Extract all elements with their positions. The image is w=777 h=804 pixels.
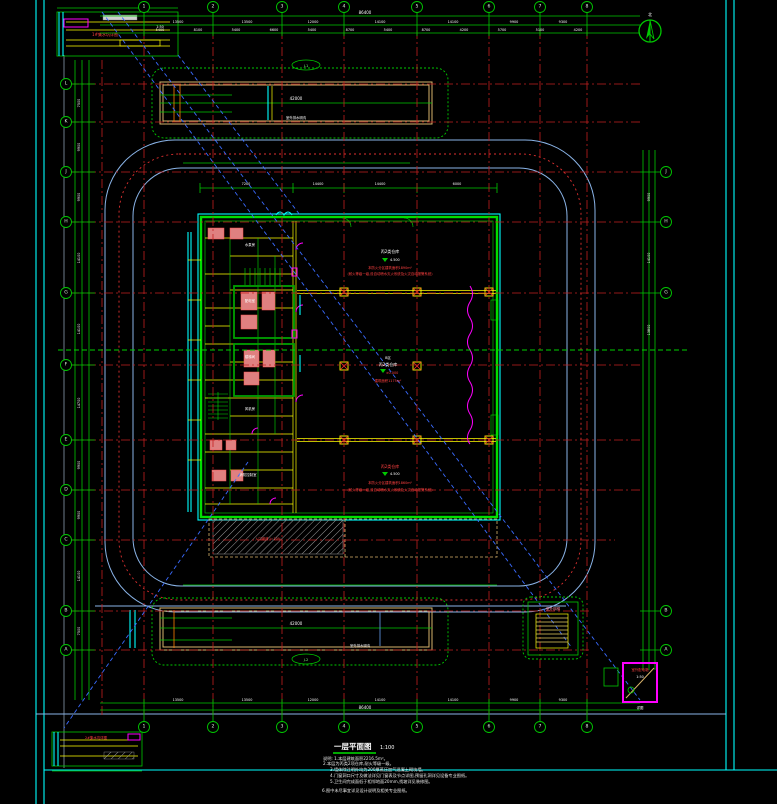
dimension-lines	[58, 12, 688, 722]
title-block: 一层平面图 1:100 说明: 1.本层建筑面积2216.5m²。 2.本层为丙…	[322, 742, 469, 794]
cad-floor-plan-sheet: J-1 42000 室外排水明沟 42000 J-2 室外排水明沟 1#集水坑详…	[0, 0, 777, 804]
dim: 7500	[77, 99, 81, 108]
dim: 14100	[375, 20, 386, 24]
grid-bubble-label: 8	[586, 724, 589, 730]
dim: 4200	[574, 28, 583, 32]
grid-bubble-label: 7	[539, 4, 542, 10]
grid-bubble-label: 3	[281, 4, 284, 10]
grid-bubble-label: 7	[539, 724, 542, 730]
north-label: 北	[648, 11, 652, 17]
service-room-label: 配电室	[245, 298, 256, 303]
bottom-trench-block: 42000 J-2 室外排水明沟	[130, 598, 448, 665]
middle-room-name: 丙2类仓库	[379, 361, 398, 367]
bottom-left-detail-block: 2#集水坑详图	[52, 732, 142, 771]
building-plan	[183, 163, 500, 585]
dim: 14100	[77, 253, 81, 264]
dim: 13500	[173, 20, 184, 24]
dim: 6000	[453, 182, 462, 186]
top-block-tag: J-1	[303, 64, 309, 68]
dim: 5400	[384, 28, 393, 32]
dim: 14700	[77, 398, 81, 409]
grid-bubble-label: G	[64, 290, 68, 296]
dim: 9300	[559, 20, 568, 24]
dim: 9900	[77, 193, 81, 202]
grid-bubble-label: 8	[586, 4, 589, 10]
drawing-title: 一层平面图	[334, 742, 372, 751]
cad-drawing-canvas: J-1 42000 室外排水明沟 42000 J-2 室外排水明沟 1#集水坑详…	[0, 0, 777, 804]
dim: 4200	[460, 28, 469, 32]
middle-room-elevation: ±0.000	[386, 371, 399, 375]
dim: 5400	[308, 28, 317, 32]
grid-bubble-label: 1	[143, 724, 146, 730]
dim: 14100	[375, 698, 386, 702]
detail-leader-lines	[64, 12, 640, 728]
dim: 9900	[510, 698, 519, 702]
top-block-dim: 42000	[290, 96, 303, 101]
grid-bubble-label: H	[64, 219, 67, 225]
dim: 5100	[536, 28, 545, 32]
upper-room-note: 本防火分区建筑面积1890m²	[368, 265, 412, 270]
grid-bubble-label: B	[64, 608, 67, 614]
equipment-fixtures	[208, 228, 275, 481]
bottom-block-tag: J-2	[303, 658, 309, 662]
top-trench-block: J-1 42000 室外排水明沟	[152, 60, 448, 138]
dim: 12000	[308, 698, 319, 702]
switch-box-label: 室外配电箱	[632, 667, 650, 672]
north-arrow: 北	[639, 11, 661, 42]
bottom-block-label: 室外排水明沟	[350, 643, 371, 648]
dim: 5400	[232, 28, 241, 32]
service-room-label: 消防控制室	[240, 472, 258, 477]
ramp-label: 入口坡道 i=10%	[255, 536, 282, 541]
upper-room-elevation: 4.500	[390, 258, 400, 262]
dim-top-total: 86400	[359, 10, 372, 15]
dim: 14100	[448, 20, 459, 24]
grid-bubble-label: J	[64, 169, 66, 175]
lower-room-note: (耐火等级一级,设自动喷水灭火系统及火灾自动报警系统)	[347, 487, 433, 492]
dim: 12000	[308, 20, 319, 24]
note-line: 3.墙体除注明外均为200厚蒸压加气混凝土砌块墙。	[330, 766, 426, 773]
dim: 9900	[647, 193, 651, 202]
grid-bubble-label: F	[65, 362, 68, 368]
bottom-left-block-label: 2#集水坑详图	[85, 735, 108, 740]
middle-room-note: 建筑面积1175m²	[375, 378, 402, 383]
grid-bubble-label: B	[664, 608, 667, 614]
dim: 13500	[242, 698, 253, 702]
grid-bubble-label: 5	[416, 4, 419, 10]
lower-room-elevation: 4.500	[390, 472, 400, 476]
grid-bubble-label: 4	[343, 4, 346, 10]
grid-bubble-label: L	[65, 81, 68, 87]
grid-bubble-label: 6	[488, 4, 491, 10]
dim: 9900	[77, 143, 81, 152]
dim: 14400	[313, 182, 324, 186]
dim: 14100	[647, 253, 651, 264]
grid-bubble-label: 2	[212, 724, 215, 730]
grid-bubble-label: E	[65, 437, 68, 443]
grid-bubble-label: 3	[281, 724, 284, 730]
grid-bubble-label: 5	[416, 724, 419, 730]
dim: 9900	[510, 20, 519, 24]
grid-bubble-label: D	[64, 487, 68, 493]
dim: 14100	[77, 571, 81, 582]
upper-room-note: (耐火等级一级,设自动喷水灭火系统及火灾自动报警系统)	[347, 271, 433, 276]
grid-bubble-label: C	[64, 537, 67, 543]
switch-box-caption: 详图	[637, 705, 644, 710]
lower-room-note: 本防火分区建筑面积1860m²	[368, 480, 412, 485]
top-left-block-label: 1#集水坑详图	[92, 31, 118, 37]
top-block-label: 室外排水明沟	[286, 115, 307, 120]
dim: 14100	[448, 698, 459, 702]
grid-bubble-label: J	[664, 169, 666, 175]
dim: 8100	[194, 28, 203, 32]
service-room-label: 水泵房	[245, 242, 256, 247]
middle-room-tag: B区	[385, 356, 391, 360]
stair-detail-label: 室外钢梯	[546, 606, 561, 611]
dim: 5400	[156, 28, 165, 32]
dim: 14400	[375, 182, 386, 186]
note-line: 2.本层为丙类2项仓库,耐火等级一级。	[323, 760, 394, 767]
dim: 13800	[647, 325, 651, 336]
service-room-label: 楼梯间	[245, 354, 256, 359]
note-line: 5.卫生间完成面低于相邻地面20mm,找坡详见装修图。	[330, 778, 433, 785]
dim: 9300	[559, 698, 568, 702]
dim: 13500	[173, 698, 184, 702]
upper-room-name: 丙2类仓库	[381, 248, 400, 254]
dim: 5700	[498, 28, 507, 32]
lower-room-name: 丙2类仓库	[381, 463, 400, 469]
dim-bottom-total: 86400	[359, 705, 372, 710]
dim: 9900	[77, 511, 81, 520]
dim: 8700	[346, 28, 355, 32]
grid-bubble-label: G	[664, 290, 668, 296]
road-outer-edge	[105, 140, 595, 612]
grid-bubble-label: H	[664, 219, 667, 225]
grid-bubble-label: 6	[488, 724, 491, 730]
note-line: 6.图中未尽事宜详见设计说明及相关专业图纸。	[322, 787, 410, 794]
service-room-label: 风机房	[245, 406, 256, 411]
top-left-detail-block: 1#集水坑详图 1:50	[57, 8, 178, 56]
switch-box-scale: 1:50	[636, 675, 644, 679]
dim: 9900	[77, 461, 81, 470]
note-line: 4.门窗洞口尺寸及做法详见门窗表及节点详图,预留孔洞详见设备专业图纸。	[330, 772, 469, 779]
drawing-scale: 1:100	[380, 745, 394, 751]
grid-bubble-label: 2	[212, 4, 215, 10]
dim: 6600	[270, 28, 279, 32]
bottom-block-dim: 42000	[290, 621, 303, 626]
dim: 13500	[242, 20, 253, 24]
door-swings	[252, 243, 303, 504]
dim: 14100	[77, 324, 81, 335]
grid-bubble-label: 4	[343, 724, 346, 730]
dim: 7500	[77, 627, 81, 636]
dim: 8700	[422, 28, 431, 32]
grid-bubble-label: 1	[143, 4, 146, 10]
